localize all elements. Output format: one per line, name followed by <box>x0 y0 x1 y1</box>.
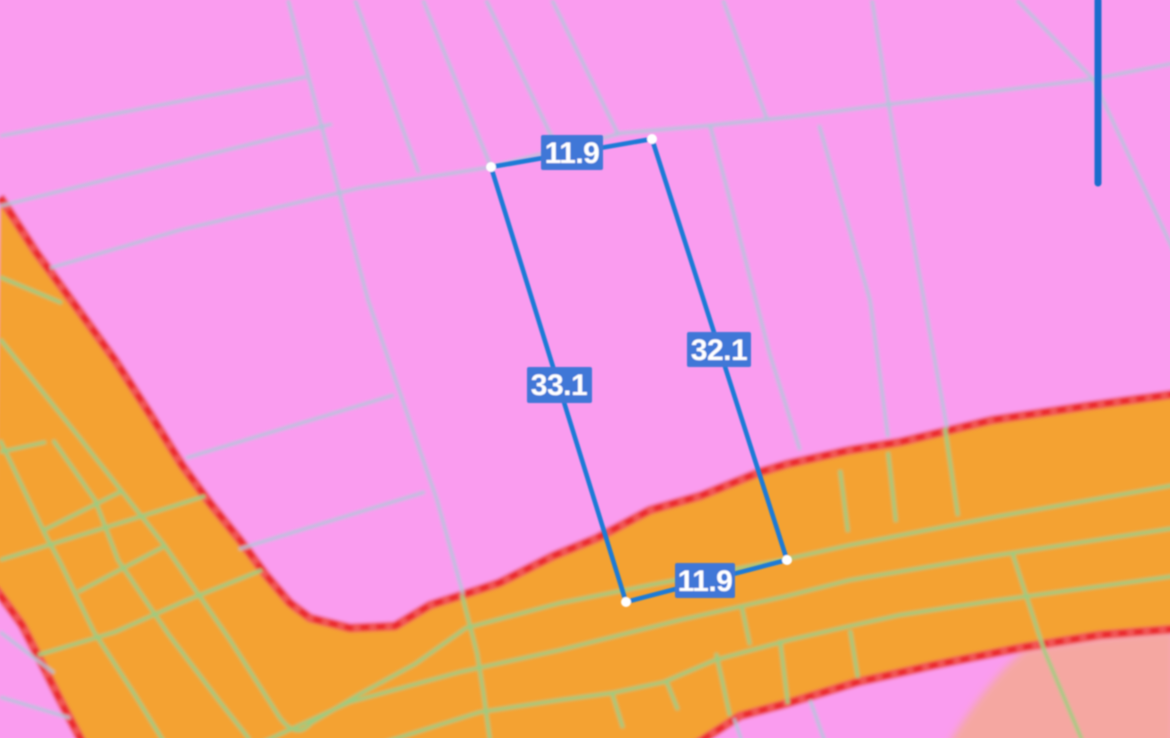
svg-text:11.9: 11.9 <box>545 137 600 170</box>
svg-text:11.9: 11.9 <box>678 565 733 598</box>
svg-text:32.1: 32.1 <box>691 334 747 367</box>
svg-text:33.1: 33.1 <box>531 369 587 402</box>
